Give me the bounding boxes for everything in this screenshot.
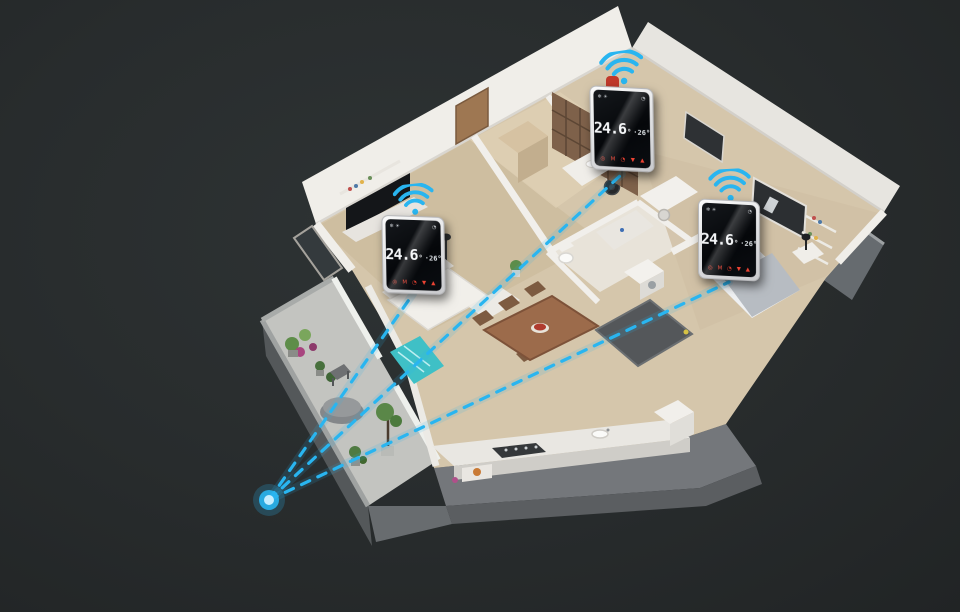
- status-icons: ❄ ☀: [706, 208, 716, 214]
- device-frame: ❄ ☀ ◔ 24.6 ° ·26° ◎ M ◔ ▼ ▲: [698, 198, 760, 281]
- mode-icon: M: [402, 280, 407, 286]
- touch-buttons: ◎ M ◔ ▼ ▲: [390, 280, 437, 287]
- power-icon: ◎: [392, 280, 397, 286]
- apartment-illustration: [0, 0, 960, 612]
- power-icon: ◎: [708, 265, 713, 271]
- temperature-readout: 24.6 ° ·26°: [598, 119, 646, 140]
- up-icon: ▲: [746, 267, 750, 273]
- current-temp: 24.6: [594, 119, 626, 139]
- degree-symbol: °: [627, 129, 631, 137]
- degree-symbol: °: [419, 254, 423, 262]
- down-icon: ▼: [631, 158, 635, 164]
- device-frame: ❄ ☀ ◔ 24.6 ° ·26° ◎ M ◔ ▼ ▲: [589, 85, 654, 172]
- table-lamp: [802, 234, 811, 241]
- down-icon: ▼: [422, 281, 426, 287]
- up-icon: ▲: [640, 158, 644, 164]
- hub-dot: [253, 484, 285, 516]
- temperature-readout: 24.6 ° ·26°: [706, 230, 752, 250]
- up-icon: ▲: [431, 281, 435, 287]
- scene: ❄ ☀ ◔ 24.6 ° ·26° ◎ M ◔ ▼ ▲ ❄ ☀ ◔: [0, 0, 960, 612]
- touch-buttons: ◎ M ◔ ▼ ▲: [599, 156, 647, 164]
- temperature-readout: 24.6 ° ·26°: [390, 245, 437, 265]
- clock-icon: ◔: [412, 280, 417, 286]
- clock-icon: ◔: [727, 266, 732, 272]
- toilet: [559, 253, 573, 263]
- mode-icon: M: [611, 157, 616, 163]
- power-icon: ◎: [601, 156, 606, 162]
- clock-icon: ◔: [432, 226, 436, 231]
- sink: [592, 430, 608, 438]
- status-icons: ❄ ☀: [597, 95, 607, 101]
- dish: [534, 324, 546, 331]
- device-screen: ❄ ☀ ◔ 24.6 ° ·26° ◎ M ◔ ▼ ▲: [385, 219, 441, 291]
- clock-icon: ◔: [641, 97, 645, 102]
- device-frame: ❄ ☀ ◔ 24.6 ° ·26° ◎ M ◔ ▼ ▲: [381, 215, 445, 295]
- set-temp: ·26°: [740, 240, 756, 249]
- counter-decor: [473, 468, 481, 476]
- status-icons: ❄ ☀: [389, 224, 399, 229]
- thermostat-living-room: ❄ ☀ ◔ 24.6 ° ·26° ◎ M ◔ ▼ ▲: [381, 215, 445, 295]
- thermostat-bathroom: ❄ ☀ ◔ 24.6 ° ·26° ◎ M ◔ ▼ ▲: [589, 85, 654, 172]
- mode-icon: M: [718, 266, 723, 272]
- thermostat-bedroom: ❄ ☀ ◔ 24.6 ° ·26° ◎ M ◔ ▼ ▲: [698, 198, 760, 281]
- current-temp: 24.6: [702, 230, 733, 250]
- down-icon: ▼: [737, 267, 741, 273]
- set-temp: ·26°: [633, 129, 650, 138]
- device-screen: ❄ ☀ ◔ 24.6 ° ·26° ◎ M ◔ ▼ ▲: [702, 203, 756, 278]
- set-temp: ·26°: [425, 255, 442, 264]
- degree-symbol: °: [734, 240, 738, 248]
- desk-chair: [659, 210, 670, 221]
- touch-buttons: ◎ M ◔ ▼ ▲: [706, 265, 752, 273]
- current-temp: 24.6: [385, 245, 417, 264]
- clock-icon: ◔: [621, 157, 626, 163]
- device-screen: ❄ ☀ ◔ 24.6 ° ·26° ◎ M ◔ ▼ ▲: [593, 89, 650, 168]
- clock-icon: ◔: [748, 210, 752, 215]
